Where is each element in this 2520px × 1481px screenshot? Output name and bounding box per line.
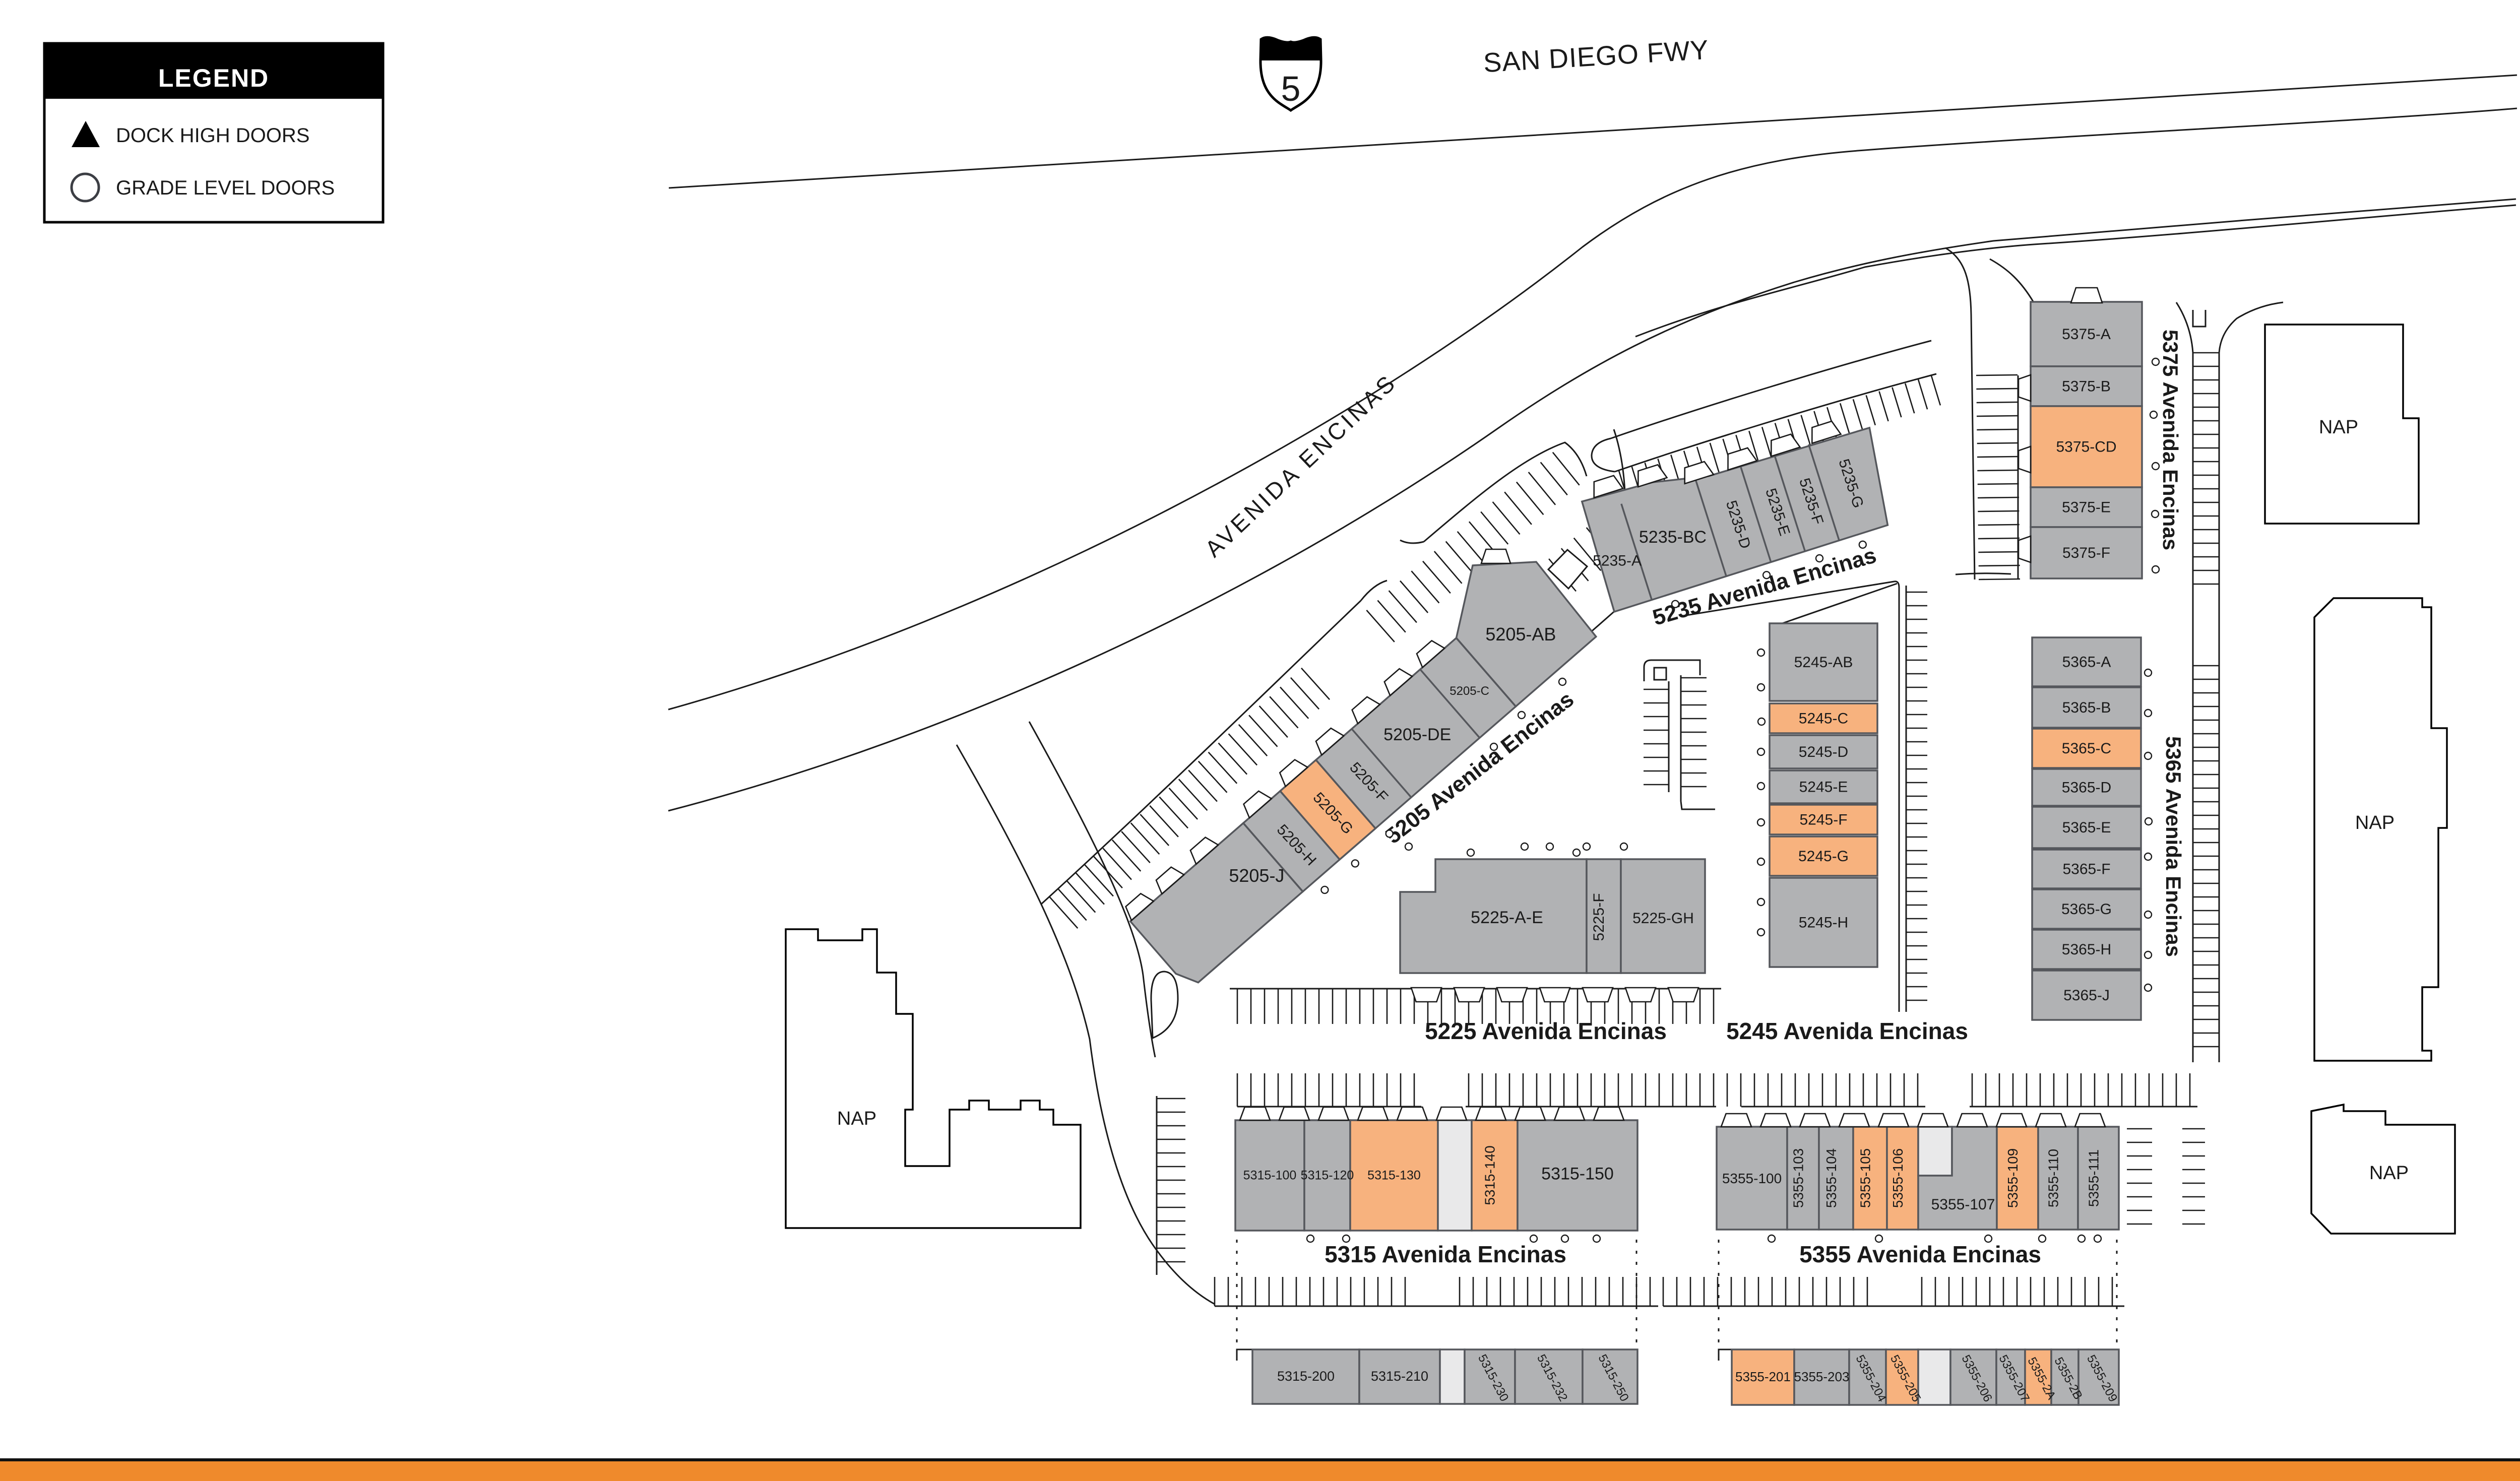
svg-text:5355-104: 5355-104 [1823, 1148, 1839, 1208]
svg-text:NAP: NAP [2369, 1163, 2409, 1184]
svg-text:5235-A: 5235-A [1593, 553, 1642, 569]
svg-text:5245-C: 5245-C [1799, 711, 1848, 727]
svg-text:5315-210: 5315-210 [1371, 1369, 1428, 1384]
svg-text:5315-130: 5315-130 [1367, 1169, 1421, 1183]
svg-text:NAP: NAP [837, 1108, 876, 1129]
svg-text:5355-109: 5355-109 [2005, 1148, 2021, 1208]
svg-text:5315-200: 5315-200 [1277, 1369, 1335, 1384]
svg-text:GRADE LEVEL DOORS: GRADE LEVEL DOORS [116, 177, 335, 199]
svg-text:5365-G: 5365-G [2061, 901, 2112, 918]
svg-text:5355-201: 5355-201 [1735, 1369, 1791, 1384]
svg-text:5315 Avenida Encinas: 5315 Avenida Encinas [1325, 1241, 1566, 1267]
svg-text:5: 5 [1281, 69, 1301, 108]
svg-text:5365-A: 5365-A [2062, 654, 2111, 671]
svg-text:5235-BC: 5235-BC [1639, 528, 1707, 547]
svg-text:NAP: NAP [2355, 812, 2395, 833]
svg-text:5375-E: 5375-E [2062, 499, 2111, 516]
svg-text:5225-F: 5225-F [1591, 893, 1607, 941]
svg-text:5355-100: 5355-100 [1722, 1171, 1782, 1186]
svg-text:5375 Avenida Encinas: 5375 Avenida Encinas [2159, 330, 2182, 550]
svg-text:5365 Avenida Encinas: 5365 Avenida Encinas [2162, 736, 2185, 957]
svg-text:5365-F: 5365-F [2062, 861, 2110, 878]
svg-text:5375-F: 5375-F [2062, 545, 2110, 561]
svg-text:5365-B: 5365-B [2062, 699, 2111, 716]
svg-text:5375-CD: 5375-CD [2056, 439, 2116, 456]
svg-text:5245-G: 5245-G [1798, 848, 1849, 865]
svg-text:5315-100: 5315-100 [1243, 1169, 1297, 1183]
svg-text:5365-E: 5365-E [2062, 819, 2111, 836]
svg-text:5375-B: 5375-B [2062, 378, 2111, 395]
svg-text:5355-107: 5355-107 [1931, 1196, 1995, 1213]
svg-text:5245 Avenida Encinas: 5245 Avenida Encinas [1726, 1018, 1968, 1044]
svg-text:5225-GH: 5225-GH [1632, 910, 1694, 927]
svg-text:5205-J: 5205-J [1229, 865, 1284, 886]
svg-text:5205-DE: 5205-DE [1383, 725, 1451, 744]
svg-text:5205-AB: 5205-AB [1485, 624, 1556, 645]
svg-text:5245-AB: 5245-AB [1794, 654, 1853, 671]
svg-text:5355-106: 5355-106 [1890, 1148, 1906, 1208]
svg-text:5365-H: 5365-H [2062, 941, 2111, 958]
svg-text:5365-C: 5365-C [2062, 740, 2111, 757]
svg-text:5225 Avenida Encinas: 5225 Avenida Encinas [1425, 1018, 1667, 1044]
svg-text:5315-120: 5315-120 [1301, 1169, 1354, 1183]
svg-text:5365-J: 5365-J [2063, 987, 2110, 1004]
svg-text:DOCK HIGH DOORS: DOCK HIGH DOORS [116, 124, 309, 147]
svg-text:5355-110: 5355-110 [2046, 1149, 2061, 1207]
svg-text:5315-150: 5315-150 [1541, 1165, 1614, 1184]
svg-text:5355-111: 5355-111 [2086, 1149, 2102, 1207]
svg-text:5355-203: 5355-203 [1794, 1369, 1850, 1384]
svg-text:5355-103: 5355-103 [1791, 1148, 1806, 1208]
svg-text:5245-E: 5245-E [1799, 779, 1848, 796]
svg-text:5225-A-E: 5225-A-E [1471, 908, 1543, 927]
svg-text:NAP: NAP [2319, 417, 2358, 438]
svg-text:5375-A: 5375-A [2062, 326, 2111, 343]
svg-text:5245-H: 5245-H [1799, 915, 1848, 931]
svg-text:5315-140: 5315-140 [1482, 1145, 1498, 1205]
svg-text:5365-D: 5365-D [2062, 780, 2111, 796]
svg-text:5205-C: 5205-C [1450, 684, 1489, 698]
svg-text:5355-105: 5355-105 [1858, 1148, 1873, 1208]
svg-text:LEGEND: LEGEND [158, 64, 269, 92]
svg-text:5355 Avenida Encinas: 5355 Avenida Encinas [1799, 1241, 2041, 1267]
svg-text:5245-D: 5245-D [1799, 744, 1848, 760]
svg-text:5245-F: 5245-F [1799, 812, 1847, 828]
